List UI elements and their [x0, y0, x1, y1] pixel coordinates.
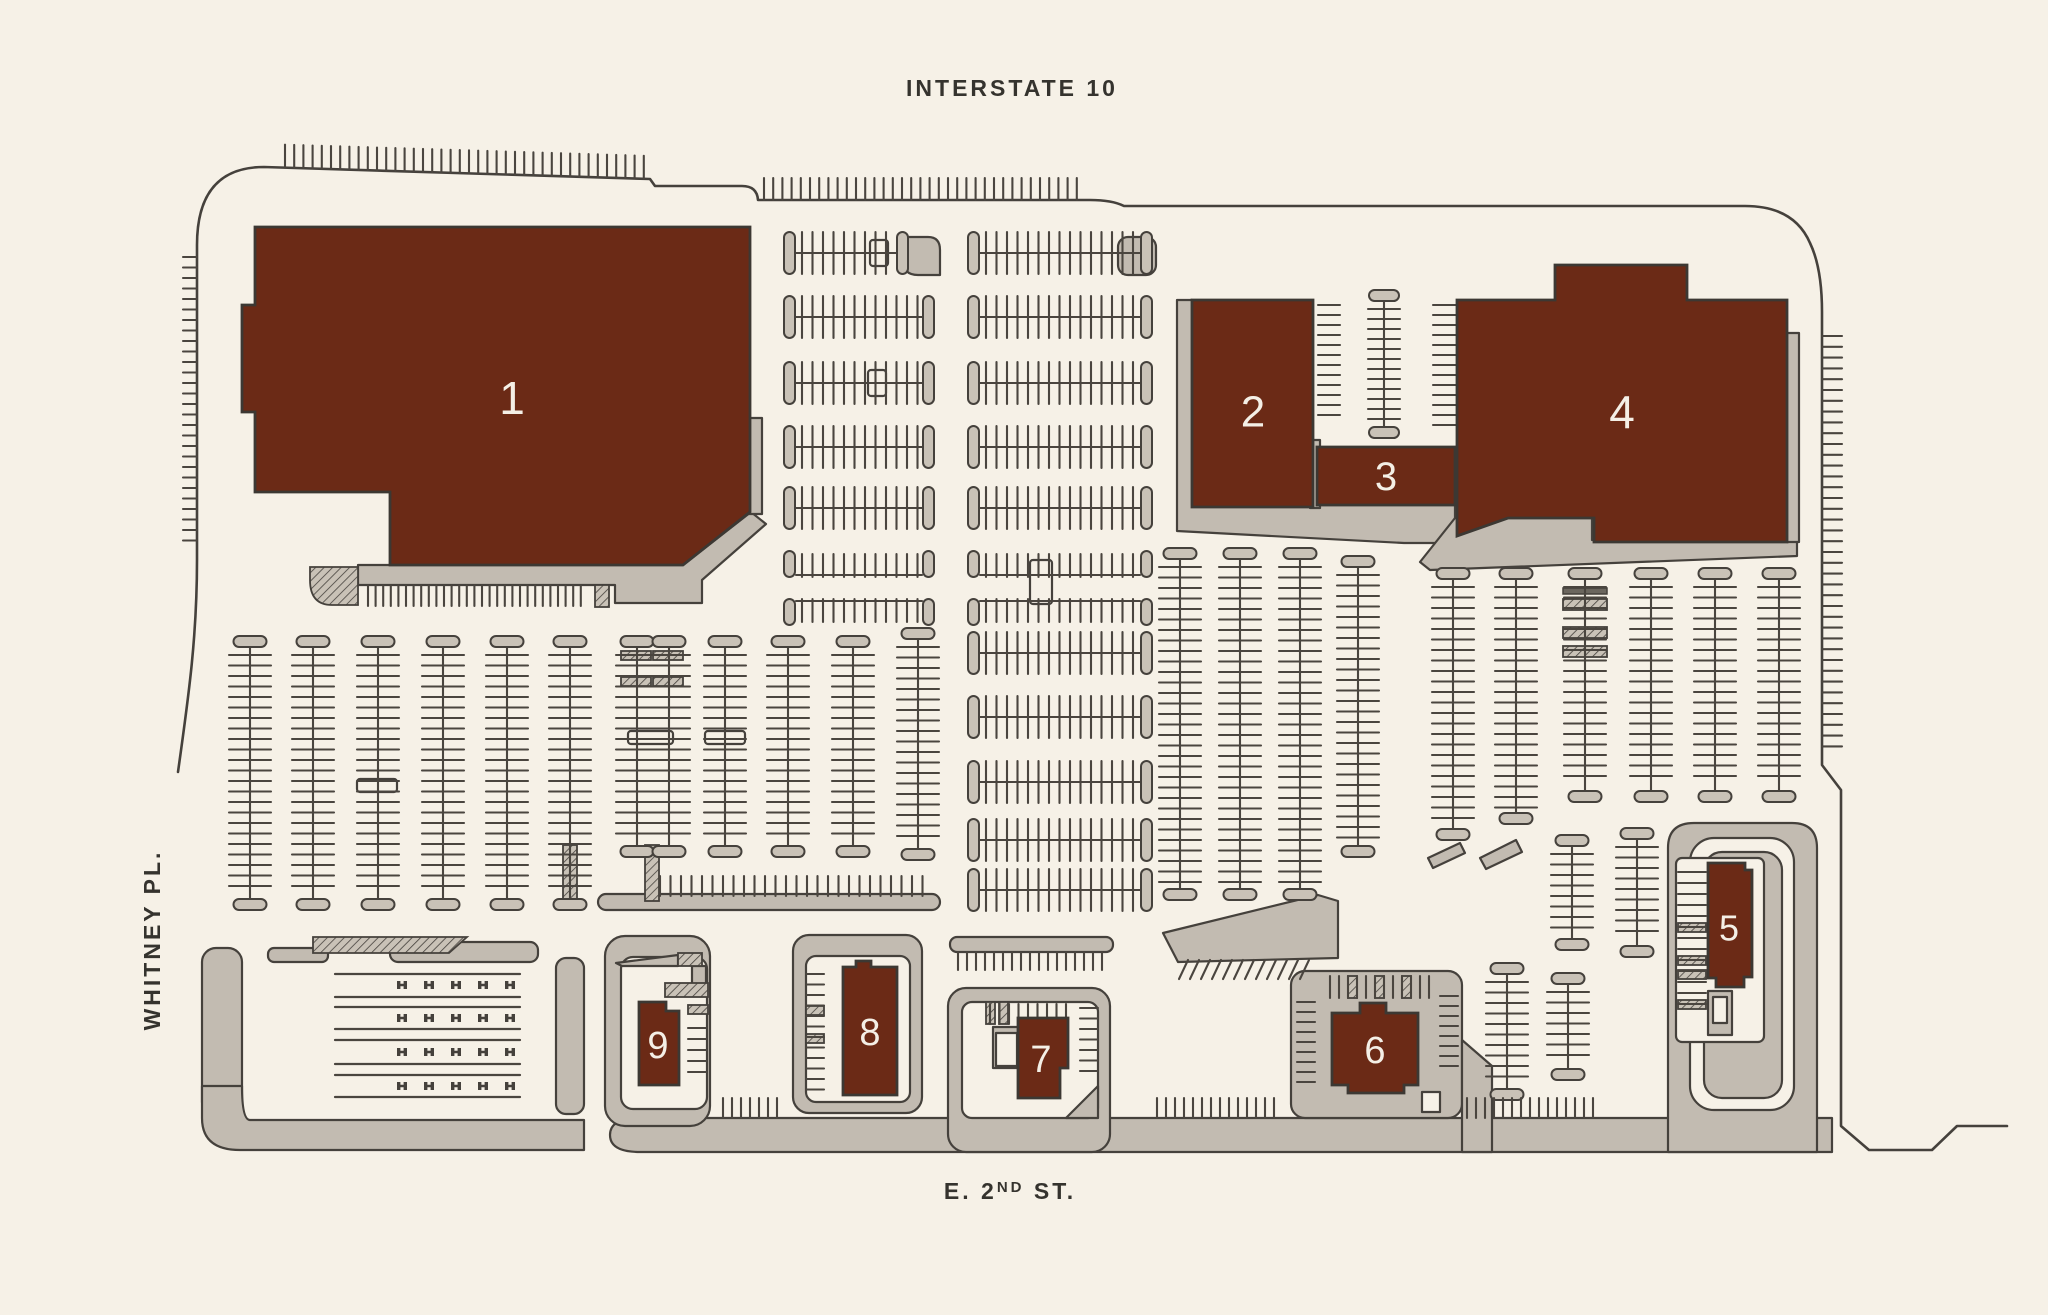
- building-9-number: 9: [647, 1025, 668, 1067]
- building-4[interactable]: 4: [1457, 265, 1787, 542]
- street-label-left: WHITNEY PL.: [139, 850, 165, 1031]
- building-6[interactable]: 6: [1332, 1003, 1418, 1093]
- building-2[interactable]: 2: [1192, 300, 1313, 507]
- building-5-number: 5: [1719, 908, 1739, 949]
- building-8[interactable]: 8: [843, 961, 897, 1095]
- building-7-number: 7: [1030, 1039, 1051, 1081]
- site-plan-map: 123456789 INTERSTATE 10 WHITNEY PL. E. 2…: [0, 0, 2048, 1315]
- buildings-layer: 123456789: [242, 227, 1787, 1098]
- building-3[interactable]: 3: [1317, 447, 1455, 505]
- building-8-number: 8: [859, 1012, 880, 1054]
- garden-center-aisles: [335, 974, 520, 1097]
- site-plan-svg: 123456789 INTERSTATE 10 WHITNEY PL. E. 2…: [0, 0, 2048, 1315]
- building-7[interactable]: 7: [1018, 1018, 1068, 1098]
- building-5[interactable]: 5: [1708, 863, 1752, 987]
- building-6-number: 6: [1364, 1030, 1385, 1072]
- building-1-number: 1: [499, 372, 525, 424]
- building-2-number: 2: [1241, 388, 1265, 437]
- street-label-top: INTERSTATE 10: [906, 75, 1118, 101]
- building-1-footprint: [242, 227, 750, 565]
- building-4-number: 4: [1609, 386, 1635, 438]
- street-label-bottom: E. 2ND ST.: [944, 1178, 1076, 1204]
- building-9[interactable]: 9: [639, 1002, 679, 1085]
- building-1[interactable]: 1: [242, 227, 750, 565]
- building-3-number: 3: [1375, 455, 1397, 499]
